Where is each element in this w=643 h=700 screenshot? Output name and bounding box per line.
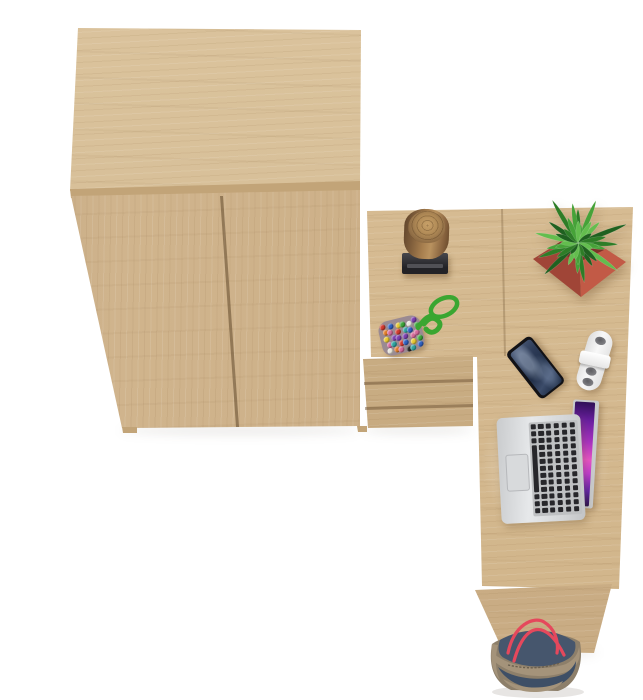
laptop-key	[565, 499, 571, 505]
laptop-key	[555, 458, 561, 464]
laptop-key	[539, 452, 545, 458]
laptop-key	[563, 465, 569, 471]
laptop-key	[563, 458, 569, 464]
laptop-key	[565, 492, 571, 498]
laptop-key	[541, 487, 547, 493]
laptop-key	[540, 459, 546, 465]
laptop-key	[558, 500, 564, 506]
log-sculpture	[403, 208, 450, 260]
laptop-key	[556, 472, 562, 478]
laptop-key	[546, 423, 552, 429]
laptop-key	[555, 444, 561, 450]
laptop-key	[573, 492, 579, 498]
laptop-key	[556, 465, 562, 471]
laptop-key	[565, 486, 571, 492]
laptop-key	[571, 464, 577, 470]
laptop-key	[548, 472, 554, 478]
laptop-key	[534, 494, 540, 500]
laptop-key	[550, 500, 556, 506]
laptop-spacebar	[531, 445, 539, 492]
tote-bag	[478, 612, 598, 700]
laptop-key	[539, 445, 545, 451]
laptop-key	[549, 486, 555, 492]
laptop-key	[555, 451, 561, 457]
laptop-key	[534, 501, 540, 507]
bead-cord	[378, 294, 462, 356]
laptop-key	[563, 451, 569, 457]
laptop-key	[561, 423, 567, 429]
laptop-key	[542, 508, 548, 514]
organizer-hole	[581, 377, 594, 388]
log-top-face	[408, 210, 446, 243]
laptop-key	[572, 478, 578, 484]
laptop-body	[496, 414, 585, 524]
laptop-key	[569, 422, 575, 428]
laptop-key	[554, 437, 560, 443]
bead-toy	[378, 294, 462, 356]
laptop-key	[572, 471, 578, 477]
laptop-key	[556, 479, 562, 485]
laptop-key	[535, 508, 541, 514]
laptop-key	[572, 485, 578, 491]
laptop-key	[550, 507, 556, 513]
laptop-key	[562, 444, 568, 450]
laptop-key	[546, 430, 552, 436]
laptop-key	[570, 443, 576, 449]
laptop-key	[571, 450, 577, 456]
laptop	[496, 394, 604, 530]
laptop-key	[548, 458, 554, 464]
laptop-key	[531, 431, 537, 437]
laptop-key	[538, 424, 544, 430]
laptop-key	[554, 430, 560, 436]
laptop-key	[557, 493, 563, 499]
laptop-key	[564, 479, 570, 485]
laptop-key	[530, 424, 536, 430]
organizer-hole	[594, 335, 607, 346]
scene-stage	[0, 0, 643, 700]
laptop-key	[547, 451, 553, 457]
laptop-key	[549, 479, 555, 485]
laptop-key	[546, 437, 552, 443]
laptop-key	[562, 437, 568, 443]
potted-plant	[512, 186, 642, 308]
laptop-key	[569, 429, 575, 435]
laptop-key	[538, 431, 544, 437]
laptop-key	[547, 444, 553, 450]
laptop-key	[542, 501, 548, 507]
laptop-key	[531, 438, 537, 444]
laptop-key	[554, 423, 560, 429]
laptop-key	[548, 465, 554, 471]
laptop-key	[549, 493, 555, 499]
organizer-strap	[578, 350, 611, 369]
laptop-keyboard	[529, 420, 583, 516]
laptop-key	[558, 507, 564, 513]
laptop-key	[562, 430, 568, 436]
laptop-key	[573, 506, 579, 512]
laptop-key	[564, 472, 570, 478]
laptop-key	[541, 480, 547, 486]
laptop-key	[540, 466, 546, 472]
organizer-hole	[585, 366, 598, 377]
laptop-key	[542, 494, 548, 500]
laptop-key	[566, 506, 572, 512]
log-stand-slot	[407, 264, 443, 268]
laptop-trackpad	[505, 454, 530, 492]
laptop-key	[571, 457, 577, 463]
laptop-key	[541, 473, 547, 479]
laptop-key	[539, 438, 545, 444]
laptop-key	[557, 486, 563, 492]
laptop-key	[573, 499, 579, 505]
laptop-key	[570, 436, 576, 442]
